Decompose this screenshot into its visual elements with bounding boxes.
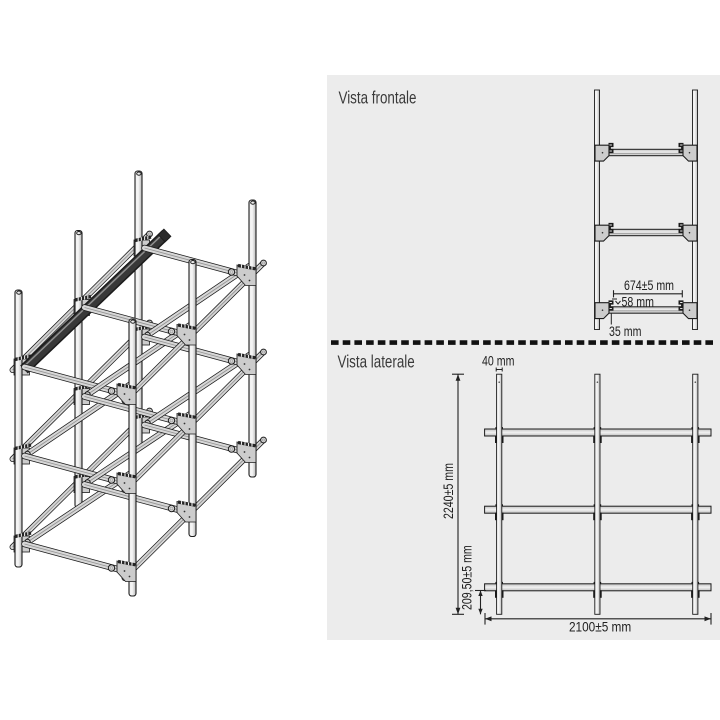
svg-text:40 mm: 40 mm — [482, 353, 514, 369]
svg-text:2100±5 mm: 2100±5 mm — [569, 619, 631, 635]
svg-text:209,50±5 mm: 209,50±5 mm — [459, 545, 475, 610]
svg-text:674±5 mm: 674±5 mm — [624, 278, 674, 294]
svg-text:Vista frontale: Vista frontale — [339, 89, 417, 108]
svg-text:Vista laterale: Vista laterale — [338, 353, 415, 372]
svg-text:2240±5 mm: 2240±5 mm — [441, 463, 457, 519]
svg-text:58 mm: 58 mm — [622, 294, 654, 310]
svg-text:35 mm: 35 mm — [609, 324, 641, 340]
